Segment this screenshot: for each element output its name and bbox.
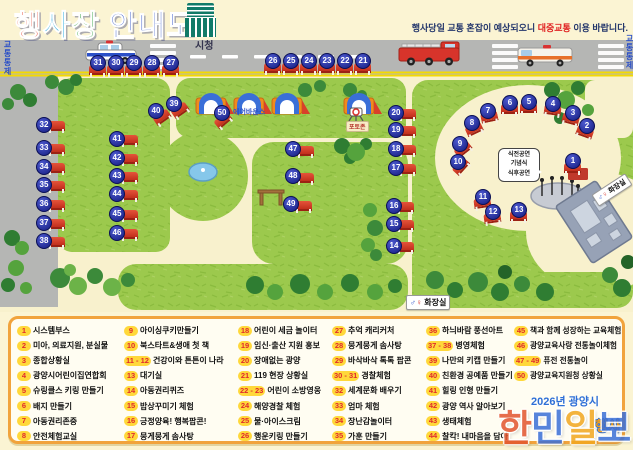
bubble-line-3: 식후공연	[499, 170, 539, 179]
legend-item-46: 46광양교육사랑 전통놀이체험	[514, 338, 621, 353]
title-char: 사	[43, 10, 72, 43]
page-title: 행사장 안내도	[14, 1, 195, 45]
legend-item-25: 25물·아이스크림	[238, 414, 321, 429]
legend-item-20: 20장애없는 광양	[238, 353, 321, 368]
legend-column-2: 9아이싱쿠키만들기10북스타트&생애 첫 책11 - 12건강이와 튼튼이 나라…	[124, 323, 224, 444]
legend-label: 장애없는 광양	[254, 355, 300, 366]
legend-number: 50	[514, 371, 528, 381]
legend-label: 광양교육사랑 전통놀이체험	[530, 340, 617, 351]
legend-label: 아동권리퀴즈	[140, 385, 184, 396]
legend-number: 10	[124, 341, 138, 351]
traffic-notice-highlight: 대중교통	[538, 23, 571, 33]
legend-column-4: 27추억 캐리커처28뭉게뭉게 솜사탕29바삭바삭 톡톡 팝콘30 - 31경찰…	[332, 323, 411, 444]
legend-item-27: 27추억 캐리커처	[332, 323, 411, 338]
legend-number: 34	[332, 416, 346, 426]
legend-number: 29	[332, 356, 346, 366]
newspaper-watermark: 한민일보	[498, 398, 630, 450]
restroom-text: 화장실	[424, 298, 446, 307]
legend-number: 20	[238, 356, 252, 366]
watermark-char: 보	[597, 398, 630, 450]
bubble-line-1: 식전공연	[499, 151, 539, 160]
watermark-char: 일	[564, 398, 597, 450]
legend-item-18: 18어린이 세금 놀이터	[238, 323, 321, 338]
legend-item-16: 16긍정양육! 행복팝콘!	[124, 414, 224, 429]
legend-label: 아이싱쿠키만들기	[140, 325, 199, 336]
legend-item-9: 9아이싱쿠키만들기	[124, 323, 224, 338]
legend-item-30-31: 30 - 31경찰체험	[332, 368, 411, 383]
legend-item-14: 14아동권리퀴즈	[124, 383, 224, 398]
legend-item-2: 2미아, 의료지원, 분실물	[17, 338, 108, 353]
legend-item-13: 13대기실	[124, 368, 224, 383]
legend-item-15: 15밥상꾸미기 체험	[124, 398, 224, 413]
legend-number: 41	[426, 386, 440, 396]
legend-label: 아동권리존중	[33, 416, 77, 427]
legend-label: 밥상꾸미기 체험	[140, 401, 194, 412]
legend-label: 뭉게뭉게 솜사탕	[140, 431, 194, 442]
legend-item-8: 8안전체험교실	[17, 429, 108, 444]
legend-number: 32	[332, 386, 346, 396]
legend-item-22-23: 22 - 23어린이 소방영웅	[238, 383, 321, 398]
stage-speech-bubble: 식전공연 기념식 식후공연	[498, 148, 540, 182]
legend-item-32: 32세계문화 배우기	[332, 383, 411, 398]
legend-number: 7	[17, 416, 31, 426]
legend-number: 39	[426, 356, 440, 366]
legend-number: 42	[426, 401, 440, 411]
traffic-control-left-label: 교통통제	[2, 40, 13, 76]
legend-label: 종합상황실	[33, 355, 70, 366]
legend-label: 추억 캐리커처	[348, 325, 394, 336]
legend-label: 긍정양육! 행복팝콘!	[140, 416, 206, 427]
legend-number: 35	[332, 431, 346, 441]
legend-label: 미아, 의료지원, 분실물	[33, 340, 108, 351]
legend-item-36: 36하늬바람 풍선아트	[426, 323, 513, 338]
legend-number: 5	[17, 386, 31, 396]
legend-item-26: 26행운키링 만들기	[238, 429, 321, 444]
legend-number: 43	[426, 416, 440, 426]
legend-number: 13	[124, 371, 138, 381]
legend-number: 47 - 49	[514, 356, 541, 366]
city-hall-icon	[185, 3, 216, 36]
legend-item-37-38: 37 - 38병영체험	[426, 338, 513, 353]
watermark-char: 민	[531, 398, 564, 450]
legend-label: 친환경 공예품 만들기	[442, 370, 513, 381]
legend-label: 책과 함께 성장하는 교육체험	[530, 325, 621, 336]
legend-label: 119 현장 상황실	[254, 370, 308, 381]
legend-number: 37 - 38	[426, 341, 453, 351]
legend-column-3: 18어린이 세금 놀이터19임신·출산 지원 홍보20장애없는 광양21119 …	[238, 323, 321, 444]
city-hall-icon-body	[185, 17, 216, 37]
bubble-line-2: 기념식	[499, 160, 539, 169]
title-char: 장	[71, 10, 100, 43]
legend-item-35: 35가훈 만들기	[332, 429, 411, 444]
legend-label: 광양교육지원청 상황실	[530, 370, 603, 381]
city-hall-icon-roof	[187, 3, 214, 17]
legend-item-21: 21119 현장 상황실	[238, 368, 321, 383]
legend-item-33: 33엄마 체험	[332, 398, 411, 413]
legend-item-34: 34장난감놀이터	[332, 414, 411, 429]
legend-number: 27	[332, 326, 346, 336]
legend-label: 엄마 체험	[348, 401, 380, 412]
legend-number: 33	[332, 401, 346, 411]
legend-number: 25	[238, 416, 252, 426]
legend-number: 36	[426, 326, 440, 336]
legend-item-40: 40친환경 공예품 만들기	[426, 368, 513, 383]
watermark-char: 한	[498, 398, 531, 450]
legend-item-6: 6배지 만들기	[17, 398, 108, 413]
legend-item-39: 39나만의 키캡 만들기	[426, 353, 513, 368]
legend-number: 4	[17, 371, 31, 381]
traffic-notice-suffix: 이용 바랍니다.	[571, 23, 628, 33]
legend-item-4: 4광양시어린이집연합회	[17, 368, 108, 383]
photo-zone-label: 포토존	[346, 121, 369, 132]
legend-number: 6	[17, 401, 31, 411]
legend-item-17: 17뭉게뭉게 솜사탕	[124, 429, 224, 444]
fire-truck-icon	[399, 42, 459, 66]
legend-label: 물·아이스크림	[254, 416, 301, 427]
legend-number: 8	[17, 431, 31, 441]
legend-number: 26	[238, 431, 252, 441]
legend-label: 임신·출산 지원 홍보	[254, 340, 320, 351]
legend-column-6: 45책과 함께 성장하는 교육체험46광양교육사랑 전통놀이체험47 - 49퓨…	[514, 323, 621, 383]
legend-number: 40	[426, 371, 440, 381]
title-char: 행	[14, 10, 43, 43]
pond-fountain-icon	[189, 163, 217, 181]
legend-number: 3	[17, 356, 31, 366]
title-char: 내	[138, 10, 167, 43]
legend-label: 가훈 만들기	[348, 431, 387, 442]
event-map-poster: 행사장 안내도 행사당일 교통 혼잡이 예상되오니 대중교통 이용 바랍니다.	[0, 0, 633, 450]
legend-label: 행운키링 만들기	[254, 431, 308, 442]
legend-label: 대기실	[140, 370, 162, 381]
legend-item-28: 28뭉게뭉게 솜사탕	[332, 338, 411, 353]
legend-number: 1	[17, 326, 31, 336]
legend-label: 배지 만들기	[33, 401, 72, 412]
legend-number: 28	[332, 341, 346, 351]
legend-label: 장난감놀이터	[348, 416, 392, 427]
legend-item-45: 45책과 함께 성장하는 교육체험	[514, 323, 621, 338]
legend-label: 바삭바삭 톡톡 팝콘	[348, 355, 411, 366]
air-bounce-label: 에어바운스	[233, 107, 265, 117]
legend-number: 45	[514, 326, 528, 336]
legend-item-5: 5슈링클스 키링 만들기	[17, 383, 108, 398]
legend-column-1: 1시스템부스2미아, 의료지원, 분실물3종합상황실4광양시어린이집연합회5슈링…	[17, 323, 108, 444]
legend-label: 경찰체험	[361, 370, 390, 381]
legend-label: 광양시어린이집연합회	[33, 370, 107, 381]
traffic-notice: 행사당일 교통 혼잡이 예상되오니 대중교통 이용 바랍니다.	[412, 21, 628, 34]
legend-number: 11 - 12	[124, 356, 151, 366]
legend-number: 30 - 31	[332, 371, 359, 381]
legend-number: 22 - 23	[238, 386, 265, 396]
legend-number: 16	[124, 416, 138, 426]
legend-number: 24	[238, 401, 252, 411]
legend-number: 44	[426, 431, 440, 441]
legend-label: 어린이 소방영웅	[267, 385, 321, 396]
restroom-label-bottom: ♂♀ 화장실	[406, 295, 450, 310]
legend-label: 하늬바람 풍선아트	[442, 325, 503, 336]
legend-label: 건강이와 튼튼이 나라	[153, 355, 224, 366]
legend-number: 14	[124, 386, 138, 396]
legend-item-50: 50광양교육지원청 상황실	[514, 368, 621, 383]
female-icon: ♀	[416, 298, 422, 307]
legend-number: 19	[238, 341, 252, 351]
legend-item-24: 24해양경찰 체험	[238, 398, 321, 413]
legend-label: 해양경찰 체험	[254, 401, 300, 412]
legend-item-3: 3종합상황실	[17, 353, 108, 368]
legend-number: 15	[124, 401, 138, 411]
title-char: 안	[109, 10, 138, 43]
legend-number: 2	[17, 341, 31, 351]
legend-label: 어린이 세금 놀이터	[254, 325, 317, 336]
legend-label: 안전체험교실	[33, 431, 77, 442]
legend-item-1: 1시스템부스	[17, 323, 108, 338]
legend-number: 9	[124, 326, 138, 336]
legend-label: 뭉게뭉게 솜사탕	[348, 340, 402, 351]
legend-number: 18	[238, 326, 252, 336]
legend-label: 광양 역사 알아보기	[442, 401, 505, 412]
legend-label: 나만의 키캡 만들기	[442, 355, 505, 366]
legend-number: 17	[124, 431, 138, 441]
city-hall-road-label: 시청	[195, 37, 213, 52]
legend-label: 북스타트&생애 첫 책	[140, 340, 209, 351]
legend-label: 세계문화 배우기	[348, 385, 402, 396]
traffic-notice-prefix: 행사당일 교통 혼잡이 예상되오니	[412, 23, 538, 33]
legend-label: 생태체험	[442, 416, 471, 427]
legend-item-7: 7아동권리존중	[17, 414, 108, 429]
legend-label: 슈링클스 키링 만들기	[33, 385, 104, 396]
legend-item-47-49: 47 - 49퓨전 전통놀이	[514, 353, 621, 368]
legend-item-11-12: 11 - 12건강이와 튼튼이 나라	[124, 353, 224, 368]
title-char	[100, 10, 109, 43]
legend-label: 퓨전 전통놀이	[543, 355, 588, 366]
legend-label: 힐링 인형 만들기	[442, 385, 498, 396]
legend-number: 21	[238, 371, 252, 381]
legend-label: 시스템부스	[33, 325, 70, 336]
legend-item-19: 19임신·출산 지원 홍보	[238, 338, 321, 353]
traffic-control-right-label: 교통통제	[624, 34, 633, 70]
legend-label: 병영체험	[455, 340, 484, 351]
legend-item-41: 41힐링 인형 만들기	[426, 383, 513, 398]
legend-item-10: 10북스타트&생애 첫 책	[124, 338, 224, 353]
legend-number: 46	[514, 341, 528, 351]
legend-item-29: 29바삭바삭 톡톡 팝콘	[332, 353, 411, 368]
